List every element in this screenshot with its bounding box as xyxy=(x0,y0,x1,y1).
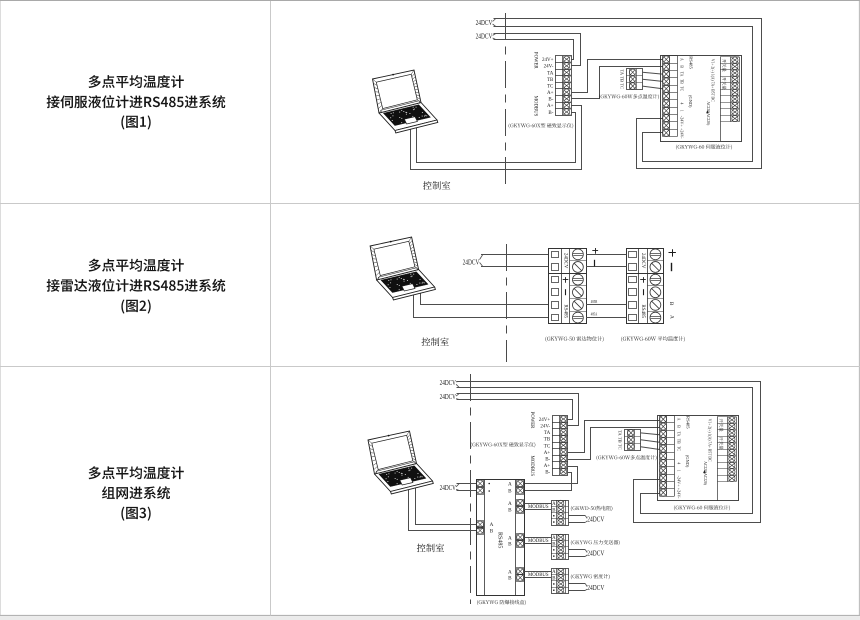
svg-text:RS485: RS485 xyxy=(562,304,567,318)
svg-text:24V-: 24V- xyxy=(540,424,550,429)
svg-text:TC: TC xyxy=(618,444,623,450)
svg-text:TA: TA xyxy=(544,431,551,436)
svg-text:A: A xyxy=(490,522,494,528)
svg-text:MODBUS: MODBUS xyxy=(528,573,549,578)
svg-text:1: 1 xyxy=(676,470,680,472)
svg-text:B: B xyxy=(508,489,512,495)
svg-text:RS485: RS485 xyxy=(497,532,503,548)
svg-text:A: A xyxy=(508,482,512,488)
svg-text:24DCV: 24DCV xyxy=(476,33,493,41)
svg-text:24DCV: 24DCV xyxy=(587,550,604,558)
svg-text:TB: TB xyxy=(547,78,554,83)
svg-text:RS485: RS485 xyxy=(689,56,694,69)
svg-text:24V-: 24V- xyxy=(544,65,554,70)
svg-text:485A: 485A xyxy=(591,313,598,317)
svg-text:1: 1 xyxy=(679,110,683,112)
svg-text:A: A xyxy=(508,535,512,541)
svg-text:TC: TC xyxy=(679,86,683,91)
svg-text:MODBUS: MODBUS xyxy=(532,96,537,117)
svg-text:B-: B- xyxy=(548,111,553,116)
svg-text:A+: A+ xyxy=(547,104,554,109)
svg-text:A: A xyxy=(668,315,674,319)
svg-text:TA: TA xyxy=(619,69,624,75)
svg-text:+24V-: +24V- xyxy=(676,488,681,499)
svg-text:POWER: POWER xyxy=(532,52,537,70)
svg-text:TB: TB xyxy=(544,438,551,443)
svg-text:B: B xyxy=(668,302,674,306)
svg-text:B-: B- xyxy=(545,471,550,476)
svg-text:(GND): (GND) xyxy=(688,95,693,108)
svg-text:-24V+: -24V+ xyxy=(676,476,681,488)
svg-text:B: B xyxy=(490,529,494,535)
svg-text:A+: A+ xyxy=(544,451,551,456)
svg-text:TB: TB xyxy=(618,437,623,443)
svg-text:24DCV: 24DCV xyxy=(587,516,604,524)
svg-text:24DCV: 24DCV xyxy=(476,19,493,27)
svg-text:TB: TB xyxy=(679,79,683,84)
svg-text:TC: TC xyxy=(547,84,554,89)
svg-text:MODBUS: MODBUS xyxy=(528,505,549,510)
svg-text:TA: TA xyxy=(679,72,683,77)
svg-text:B: B xyxy=(508,542,512,548)
svg-text:TB: TB xyxy=(619,76,624,82)
svg-text:TC: TC xyxy=(619,83,624,89)
svg-text:B: B xyxy=(508,507,512,513)
svg-text:TA: TA xyxy=(618,430,623,436)
svg-text:24DCV: 24DCV xyxy=(440,484,457,492)
svg-text:24DCV: 24DCV xyxy=(562,253,567,269)
svg-text:TA: TA xyxy=(547,71,554,76)
svg-text:4: 4 xyxy=(676,462,680,464)
svg-text:A: A xyxy=(508,501,512,507)
svg-text:24DCV: 24DCV xyxy=(640,253,645,269)
svg-text:-24V+: -24V+ xyxy=(679,116,684,128)
svg-text:24DCV: 24DCV xyxy=(587,584,604,592)
svg-text:485B: 485B xyxy=(591,300,598,304)
svg-text:RS485: RS485 xyxy=(686,416,691,429)
svg-text:24V+: 24V+ xyxy=(539,418,551,423)
svg-text:24DCV: 24DCV xyxy=(440,393,457,401)
svg-text:B: B xyxy=(508,576,512,582)
svg-text:+24V-: +24V- xyxy=(679,128,684,139)
svg-text:A+: A+ xyxy=(544,464,551,469)
svg-text:V1+ 2(+) 1(A) 7A+ B5T DC: V1+ 2(+) 1(A) 7A+ B5T DC xyxy=(707,419,711,462)
svg-text:TC: TC xyxy=(544,444,551,449)
svg-text:MODBUS: MODBUS xyxy=(529,456,534,477)
svg-text:A: A xyxy=(679,58,683,61)
svg-text:A: A xyxy=(676,418,680,421)
svg-text:4: 4 xyxy=(679,102,683,104)
svg-text:24V+: 24V+ xyxy=(542,58,554,63)
svg-text:V1+ 2(+) 1(A) 7A+ B5T DC: V1+ 2(+) 1(A) 7A+ B5T DC xyxy=(710,59,714,102)
svg-text:MODBUS: MODBUS xyxy=(528,539,549,544)
svg-text:TA: TA xyxy=(676,431,680,436)
svg-text:A+: A+ xyxy=(547,91,554,96)
svg-text:AC220(AC220): AC220(AC220) xyxy=(706,101,710,126)
svg-text:(GND): (GND) xyxy=(685,455,690,468)
svg-text:24DCV: 24DCV xyxy=(463,258,480,266)
svg-text:24DCV: 24DCV xyxy=(440,379,457,387)
svg-text:AC220(AC220): AC220(AC220) xyxy=(703,461,707,486)
svg-text:POWER: POWER xyxy=(529,412,534,430)
svg-text:RS485: RS485 xyxy=(640,304,645,318)
svg-text:B-: B- xyxy=(545,457,550,462)
svg-text:TC: TC xyxy=(676,446,680,451)
svg-text:A: A xyxy=(508,569,512,575)
svg-text:B-: B- xyxy=(548,98,553,103)
svg-text:TB: TB xyxy=(676,439,680,444)
